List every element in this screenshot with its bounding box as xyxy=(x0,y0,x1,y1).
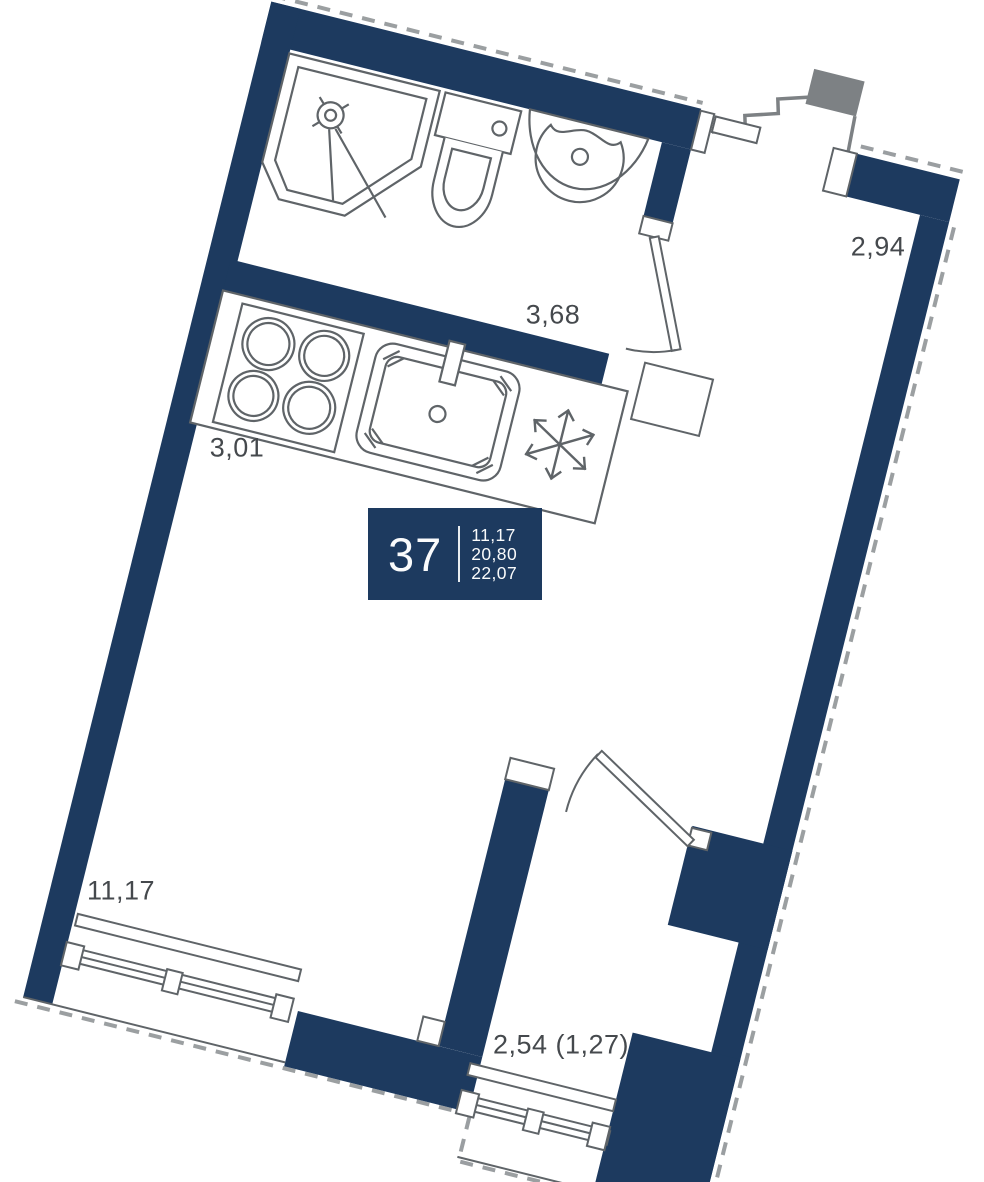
dimension-label-living-room: 11,17 xyxy=(87,876,155,907)
hall-door xyxy=(565,746,709,847)
shower-tray xyxy=(254,53,439,230)
kitchen-pier xyxy=(631,363,713,436)
unit-info-divider xyxy=(458,526,460,582)
bathroom-door xyxy=(622,234,705,361)
wall-pier xyxy=(439,779,549,1057)
cap-block-notch xyxy=(417,1016,444,1046)
wall-top-right xyxy=(846,154,959,222)
dimension-label-kitchen-wall: 3,68 xyxy=(526,300,581,331)
dimension-label-kitchen-depth: 3,01 xyxy=(210,433,265,464)
unit-number: 37 xyxy=(368,531,442,578)
entrance-door-leaf xyxy=(712,116,761,143)
unit-info-box: 37 11,17 20,80 22,07 xyxy=(368,508,542,600)
dimension-label-entry-hall: 2,94 xyxy=(851,232,906,263)
area-total: 20,80 xyxy=(471,545,517,564)
bathroom-door-leaf xyxy=(650,236,681,351)
area-overall: 22,07 xyxy=(471,564,517,583)
context-link-line xyxy=(846,116,857,151)
floorplan-page: 3,68 2,94 3,01 11,17 2,54 (1,27) 37 11,1… xyxy=(0,0,984,1182)
area-living: 11,17 xyxy=(471,526,517,545)
wall-right xyxy=(668,215,949,1182)
bathroom-door-arc xyxy=(626,338,676,360)
wall-left xyxy=(23,2,300,1005)
wall-bathroom-right xyxy=(644,142,691,223)
unit-area-list: 11,17 20,80 22,07 xyxy=(471,526,517,583)
context-walls xyxy=(712,49,866,166)
context-block xyxy=(805,69,864,117)
living-room-window xyxy=(61,913,301,1022)
hall-door-leaf xyxy=(596,751,694,846)
balcony-window xyxy=(456,1063,618,1151)
hall-door-arc xyxy=(566,750,598,816)
context-zigzag xyxy=(712,52,817,153)
dimension-label-balcony: 2,54 (1,27) xyxy=(493,1030,629,1061)
